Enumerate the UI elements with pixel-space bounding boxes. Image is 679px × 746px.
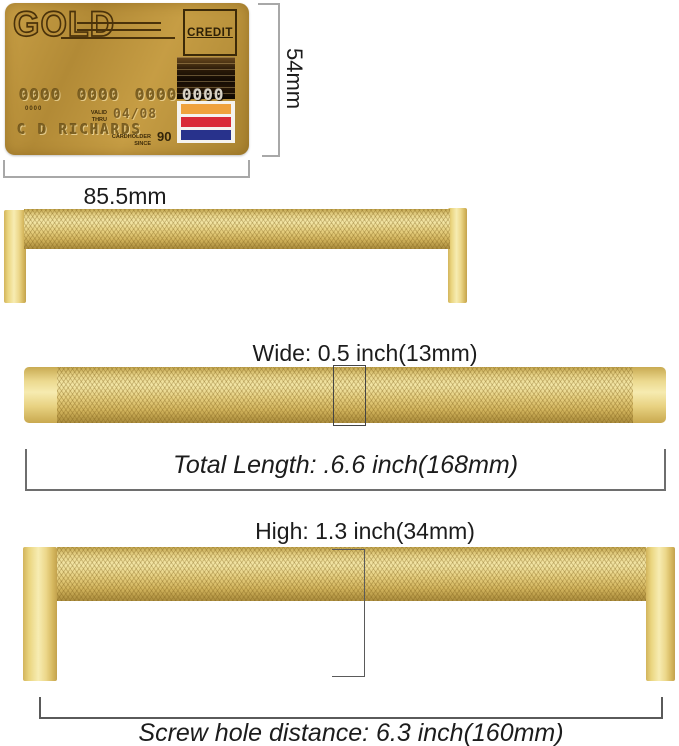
handle1-right-leg [448, 208, 467, 303]
card-number-group: 0000 [77, 85, 120, 104]
stripe-blue [181, 130, 231, 140]
card-height-bracket-tick-bottom [262, 155, 278, 157]
card-since-label-line1: CARDHOLDER [103, 134, 151, 141]
card-height-bracket-line [278, 3, 280, 157]
screw-distance-label: Screw hole distance: 6.3 inch(160mm) [39, 719, 663, 746]
card-since-label: CARDHOLDER SINCE [103, 134, 151, 148]
card-valid-label-line1: VALID [65, 110, 107, 117]
card-width-label: 85.5mm [40, 183, 210, 210]
card-height-label: 54mm [281, 48, 307, 109]
card-height-bracket-tick-top [258, 3, 278, 5]
handle3-left-leg [23, 547, 57, 681]
card-number-group: 0000 [19, 85, 62, 104]
high-measure-tick-top [332, 549, 365, 550]
screw-distance-bracket-tick-left [39, 697, 41, 719]
card-stripe-box [177, 101, 235, 143]
handle3-right-leg [646, 547, 675, 681]
card-deco-line [77, 22, 161, 24]
high-measure-line [364, 549, 365, 677]
total-length-label: Total Length: .6.6 inch(168mm) [25, 451, 666, 480]
card-since-value: 90 [157, 129, 171, 144]
card-width-bracket-line [3, 176, 250, 178]
handle2-right-cap [633, 367, 666, 423]
handle1-knurled-bar [24, 209, 450, 249]
card-deco-line [77, 29, 161, 31]
card-valid-thru-value: 04/08 [113, 107, 157, 122]
high-dimension-label: High: 1.3 inch(34mm) [50, 518, 679, 545]
card-width-bracket-tick-right [248, 160, 250, 178]
product-dimension-image: GOLD CREDIT 0000 0000 0000 0000 0000 VAL… [0, 0, 679, 746]
credit-card: GOLD CREDIT 0000 0000 0000 0000 0000 VAL… [5, 3, 249, 155]
handle2-left-cap [24, 367, 57, 423]
card-deco-line [61, 37, 175, 39]
wide-measure-box [333, 365, 366, 426]
card-since-label-line2: SINCE [103, 141, 151, 148]
card-credit-box: CREDIT [183, 9, 237, 56]
wide-dimension-label: Wide: 0.5 inch(13mm) [50, 340, 679, 367]
handle1-left-leg [4, 210, 26, 303]
screw-distance-bracket-tick-right [661, 697, 663, 719]
total-length-bracket-line [25, 489, 666, 491]
card-number-group: 0000 [135, 85, 178, 104]
stripe-orange [181, 104, 231, 114]
card-credit-label: CREDIT [187, 27, 233, 39]
card-width-bracket-tick-left [3, 160, 5, 178]
card-small-number: 0000 [25, 106, 42, 112]
card-brand: GOLD [13, 5, 115, 46]
high-measure-tick-bottom [332, 676, 365, 677]
stripe-red [181, 117, 231, 127]
handle3-knurled-bar [57, 547, 646, 601]
